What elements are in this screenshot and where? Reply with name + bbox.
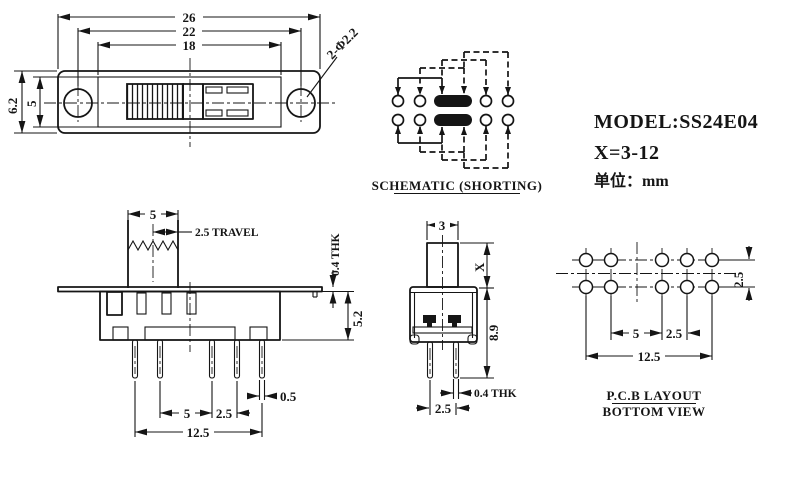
dim-pin-width: 0.5	[280, 389, 297, 404]
dim-body-height: 5.2	[350, 311, 365, 327]
pcb-dim-2-5: 2.5	[666, 326, 683, 341]
schematic-view: SCHEMATIC (SHORTING)	[372, 52, 543, 194]
info-block: MODEL:SS24E04 X=3-12 单位：mm	[594, 111, 758, 190]
hole-callout: 2-Φ2.2	[324, 25, 361, 62]
pcb-layout-view: 2.5 5 2.5 12.5 P.C.B LAYOUT BOTTOM VIEW	[556, 242, 755, 419]
dim-5-slot: 5	[24, 100, 39, 107]
shorting-bar-bottom	[434, 114, 472, 126]
dim-26: 26	[183, 10, 197, 25]
dim-pitch-5: 5	[184, 406, 191, 421]
pcb-caption: P.C.B LAYOUT	[607, 388, 702, 403]
pcb-caption-2: BOTTOM VIEW	[603, 404, 706, 419]
dim-knob-3: 3	[439, 218, 446, 233]
dim-travel: 2.5 TRAVEL	[195, 227, 259, 239]
schematic-caption: SCHEMATIC (SHORTING)	[372, 178, 543, 193]
pcb-dim-12-5: 12.5	[638, 349, 661, 364]
dim-pin-pitch: 2.5	[435, 401, 452, 416]
dim-plate-thk: 0.4 THK	[330, 233, 342, 276]
knob-serrations	[127, 84, 183, 119]
dim-span-12-5: 12.5	[187, 425, 210, 440]
pcb-dim-5: 5	[633, 326, 640, 341]
dim-22: 22	[183, 24, 196, 39]
front-pins	[133, 340, 265, 378]
dim-knob-width: 5	[150, 207, 157, 222]
unit-note: 单位：mm	[594, 171, 669, 190]
dim-row-2-5: 2.5	[731, 271, 746, 288]
dim-body-8-9: 8.9	[486, 324, 501, 341]
dim-pin-thk: 0.4 THK	[474, 388, 517, 400]
slide-switch-drawing: 26 22 18 2-Φ2.2	[0, 0, 800, 480]
model-number: MODEL:SS24E04	[594, 111, 758, 133]
dim-6-2: 6.2	[5, 98, 20, 114]
dim-pitch-2-5: 2.5	[216, 406, 233, 421]
dim-18: 18	[183, 38, 197, 53]
side-view: 3 X 8.9 0.4 THK	[410, 218, 517, 416]
top-view: 26 22 18 2-Φ2.2	[5, 10, 361, 147]
dim-stem-x: X	[472, 262, 487, 272]
engineering-drawing-sheet: 26 22 18 2-Φ2.2	[0, 0, 800, 480]
x-range: X=3-12	[594, 142, 660, 164]
front-view: 5 2.5 TRAVEL	[58, 207, 365, 440]
shorting-bar-top	[434, 95, 472, 107]
